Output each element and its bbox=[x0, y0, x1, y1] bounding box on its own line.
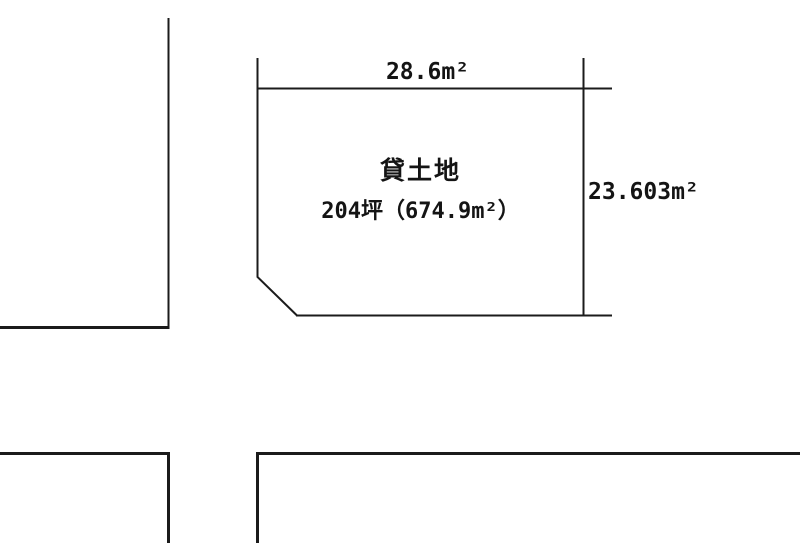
plot-boundary-left-and-bevel bbox=[258, 58, 298, 316]
plot-area-label: 204坪（674.9m²） bbox=[257, 198, 584, 225]
land-plot-diagram: 28.6m² 23.603m² 貸土地 204坪（674.9m²） bbox=[0, 0, 800, 543]
top-dimension-label: 28.6m² bbox=[250, 59, 605, 85]
right-dimension-label: 23.603m² bbox=[588, 179, 699, 205]
plot-usage-label: 貸土地 bbox=[257, 157, 584, 184]
road-edge-lower-left-corner bbox=[0, 454, 169, 543]
road-edge-lower-right-corner bbox=[258, 454, 800, 543]
